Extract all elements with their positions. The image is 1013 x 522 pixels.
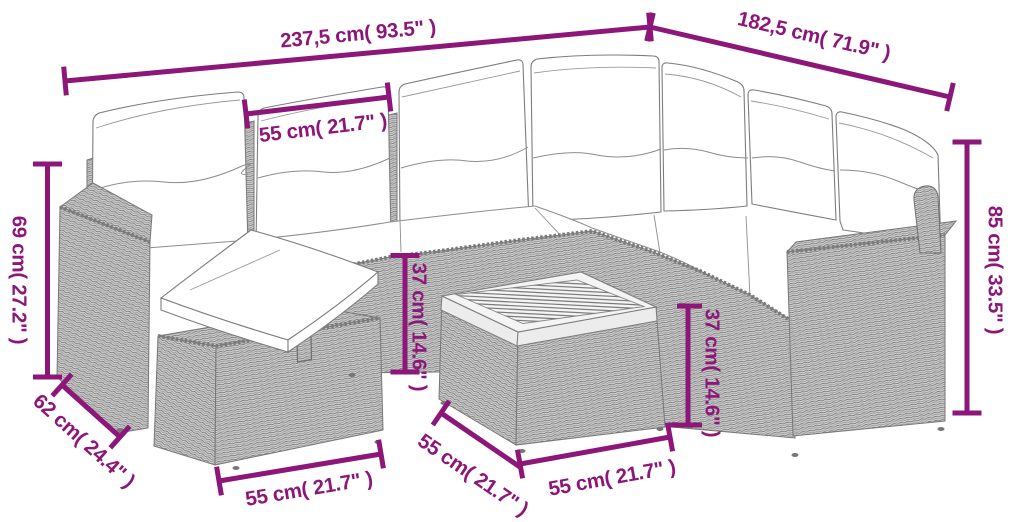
svg-text:37 cm( 14.6" ): 37 cm( 14.6" ): [701, 309, 724, 438]
svg-text:37 cm( 14.6" ): 37 cm( 14.6" ): [408, 263, 431, 392]
svg-text:85 cm( 33.5" ): 85 cm( 33.5" ): [984, 206, 1007, 335]
svg-text:69 cm( 27.2" ): 69 cm( 27.2" ): [8, 216, 31, 345]
